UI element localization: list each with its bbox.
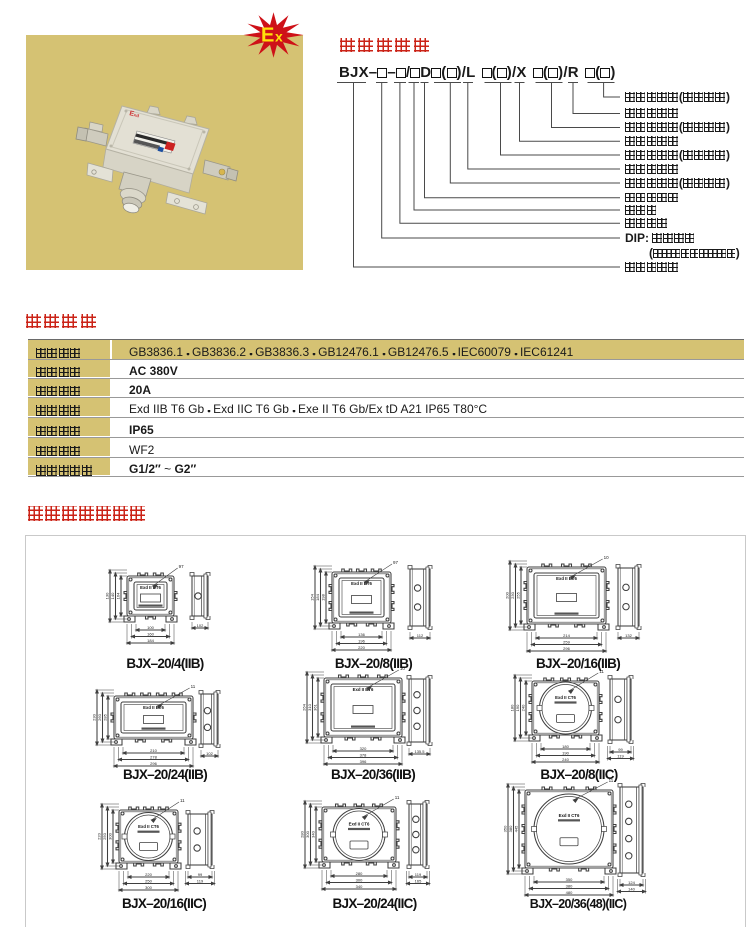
svg-text:230: 230 (92, 713, 97, 720)
svg-text:99: 99 (618, 747, 623, 752)
svg-text:196: 196 (358, 639, 365, 644)
svg-text:240: 240 (562, 757, 569, 762)
svg-text:280: 280 (300, 830, 305, 837)
svg-text:180: 180 (510, 704, 515, 711)
svg-text:Exd II BT6: Exd II BT6 (140, 585, 161, 590)
svg-text:Exd II CT6: Exd II CT6 (138, 824, 159, 829)
svg-text:260: 260 (97, 713, 102, 720)
svg-text:250: 250 (102, 832, 107, 839)
svg-text:136: 136 (358, 632, 365, 637)
svg-text:190: 190 (562, 751, 569, 756)
svg-text:140: 140 (628, 887, 635, 892)
svg-text:112: 112 (417, 633, 424, 638)
svg-text:350: 350 (566, 877, 573, 882)
svg-text:259: 259 (563, 640, 570, 645)
svg-text:11: 11 (180, 798, 185, 803)
svg-text:280: 280 (356, 871, 363, 876)
svg-text:190: 190 (515, 704, 520, 711)
svg-text:99: 99 (198, 872, 203, 877)
svg-text:296: 296 (150, 761, 157, 766)
svg-text:396: 396 (360, 759, 367, 764)
svg-text:E: E (261, 25, 274, 47)
svg-text:350: 350 (503, 825, 508, 832)
svg-text:160: 160 (147, 632, 154, 637)
svg-text:250: 250 (145, 879, 152, 884)
svg-text:240: 240 (521, 704, 526, 711)
svg-text:135.5: 135.5 (414, 749, 425, 754)
svg-text:184: 184 (315, 593, 320, 600)
svg-text:378: 378 (360, 753, 367, 758)
svg-text:Exd II CT6: Exd II CT6 (555, 695, 576, 700)
svg-text:320: 320 (360, 746, 367, 751)
svg-text:340: 340 (311, 830, 316, 837)
svg-text:198: 198 (321, 593, 326, 600)
svg-text:184: 184 (147, 638, 154, 643)
svg-text:445: 445 (514, 825, 519, 832)
svg-text:220: 220 (145, 872, 152, 877)
svg-text:100: 100 (147, 625, 154, 630)
svg-text:300: 300 (305, 830, 310, 837)
svg-text:380: 380 (508, 825, 513, 832)
svg-text:119: 119 (415, 872, 422, 877)
svg-text:97: 97 (179, 564, 185, 569)
svg-text:300: 300 (356, 878, 363, 883)
svg-text:154: 154 (310, 593, 315, 600)
svg-text:124: 124 (628, 880, 635, 885)
svg-text:278: 278 (150, 755, 157, 760)
svg-text:300: 300 (145, 885, 152, 890)
svg-text:255: 255 (516, 591, 521, 598)
svg-text:102: 102 (206, 751, 213, 756)
svg-text:140: 140 (110, 592, 115, 599)
svg-text:480: 480 (566, 890, 573, 895)
svg-text:296: 296 (563, 646, 570, 651)
svg-text:300: 300 (108, 832, 113, 839)
svg-text:210: 210 (150, 748, 157, 753)
svg-text:264: 264 (302, 703, 307, 710)
svg-text:x: x (275, 29, 283, 45)
svg-text:220: 220 (97, 832, 102, 839)
svg-text:119: 119 (617, 754, 624, 759)
svg-text:164: 164 (116, 592, 121, 599)
svg-text:361: 361 (313, 703, 318, 710)
svg-text:340: 340 (356, 884, 363, 889)
svg-text:165: 165 (415, 879, 422, 884)
svg-text:380: 380 (566, 884, 573, 889)
svg-text:Exd II CT6: Exd II CT6 (559, 813, 580, 818)
svg-text:220: 220 (358, 645, 365, 650)
svg-text:10: 10 (604, 555, 610, 560)
svg-text:180: 180 (562, 744, 569, 749)
svg-text:102: 102 (197, 623, 204, 628)
svg-text:Exd II BT6: Exd II BT6 (351, 581, 372, 586)
svg-text:230: 230 (510, 591, 515, 598)
svg-text:310: 310 (307, 703, 312, 710)
svg-text:97: 97 (393, 560, 399, 565)
svg-text:130: 130 (105, 592, 110, 599)
svg-text:11: 11 (191, 684, 196, 689)
svg-text:214: 214 (563, 633, 570, 638)
svg-text:119: 119 (197, 879, 204, 884)
svg-text:132: 132 (625, 633, 632, 638)
svg-text:200: 200 (505, 591, 510, 598)
svg-text:11: 11 (395, 795, 400, 800)
svg-text:Exd II CT6: Exd II CT6 (349, 821, 370, 826)
svg-text:285: 285 (103, 713, 108, 720)
